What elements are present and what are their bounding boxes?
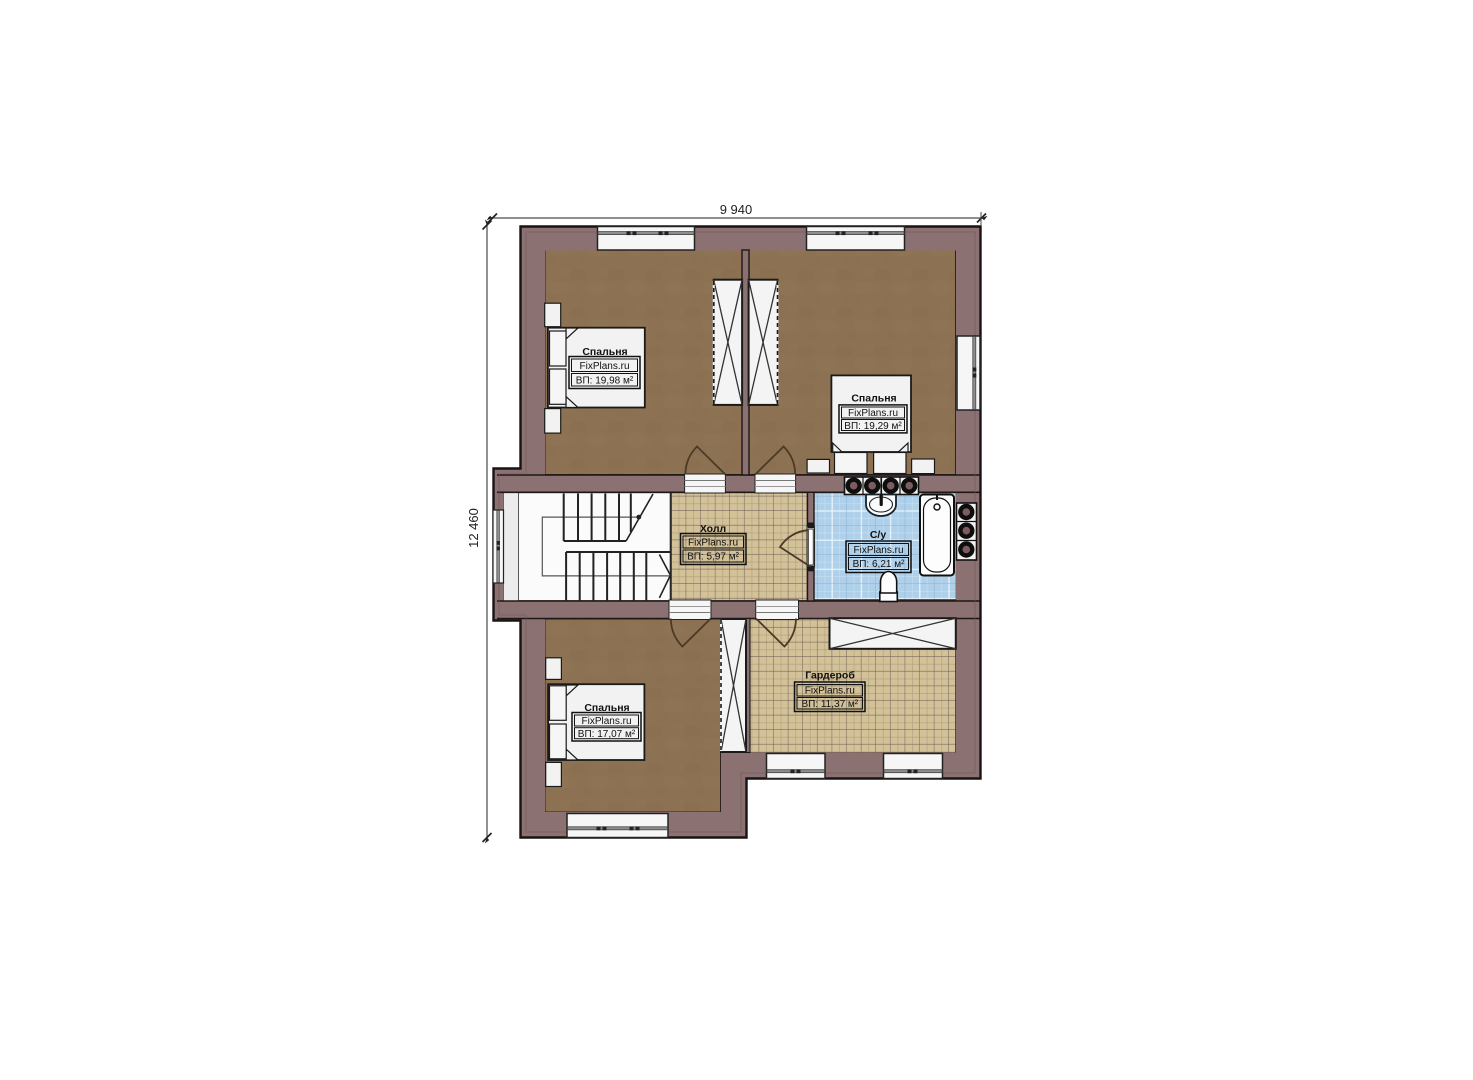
- svg-text:ВП: 17,07 м²: ВП: 17,07 м²: [578, 729, 636, 740]
- svg-text:ВП: 19,98 м²: ВП: 19,98 м²: [576, 376, 634, 387]
- svg-text:FixPlans.ru: FixPlans.ru: [688, 538, 738, 549]
- svg-text:FixPlans.ru: FixPlans.ru: [853, 545, 903, 556]
- svg-text:С/у: С/у: [870, 529, 887, 541]
- svg-text:ВП: 6,21 м²: ВП: 6,21 м²: [853, 559, 906, 570]
- svg-text:FixPlans.ru: FixPlans.ru: [805, 686, 855, 697]
- svg-text:ВП: 5,97 м²: ВП: 5,97 м²: [687, 552, 740, 563]
- svg-text:FixPlans.ru: FixPlans.ru: [848, 408, 898, 419]
- svg-text:Гардероб: Гардероб: [805, 670, 855, 682]
- svg-text:9 940: 9 940: [720, 202, 753, 217]
- svg-text:Спальня: Спальня: [851, 393, 896, 405]
- svg-text:ВП: 11,37 м²: ВП: 11,37 м²: [801, 699, 858, 710]
- svg-text:12 460: 12 460: [466, 508, 481, 548]
- svg-text:FixPlans.ru: FixPlans.ru: [579, 361, 629, 372]
- svg-text:FixPlans.ru: FixPlans.ru: [581, 716, 631, 727]
- svg-text:ВП: 19,29 м²: ВП: 19,29 м²: [844, 421, 902, 432]
